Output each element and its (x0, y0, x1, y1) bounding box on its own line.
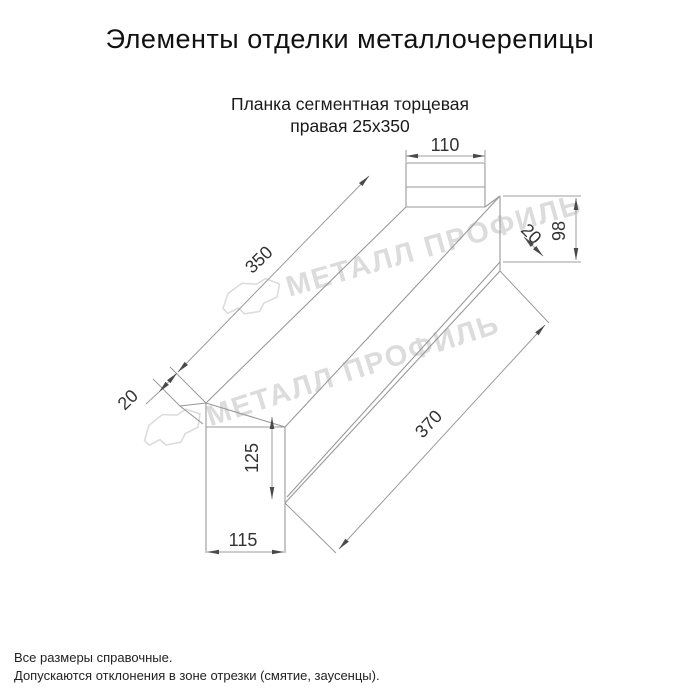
watermark-text: МЕТАЛЛ ПРОФИЛЬ (282, 188, 586, 303)
dim-125-label: 125 (242, 443, 262, 473)
catalog-page: Элементы отделки металлочерепицы Планка … (0, 0, 700, 700)
technical-drawing: МЕТАЛЛ ПРОФИЛЬ МЕТАЛЛ ПРОФИЛЬ (0, 0, 700, 700)
note-dimensions-reference: Все размеры справочные. (14, 649, 380, 667)
metal-profil-logo-icon (139, 404, 207, 453)
dim-98-label: 98 (549, 221, 569, 241)
dim-overall-length: 370 (285, 271, 549, 553)
note-cut-zone-deviations: Допускаются отклонения в зоне отрезки (с… (14, 667, 380, 685)
watermark-middle: МЕТАЛЛ ПРОФИЛЬ (139, 307, 505, 454)
watermark-text: МЕТАЛЛ ПРОФИЛЬ (203, 308, 504, 433)
dim-left-end-bottom-width: 115 (207, 530, 284, 552)
dim-110-label: 110 (431, 135, 460, 155)
dim-top-flange-width: 110 (406, 135, 485, 162)
dim-left-end-height: 125 (242, 417, 272, 499)
dim-115-label: 115 (229, 530, 258, 550)
dim-350-label: 350 (241, 242, 277, 277)
dim-370-label: 370 (411, 406, 446, 442)
footer-notes: Все размеры справочные. Допускаются откл… (14, 649, 380, 685)
dim-left-end-fold: 20 (114, 367, 206, 414)
dim-20-left-label: 20 (114, 386, 142, 414)
